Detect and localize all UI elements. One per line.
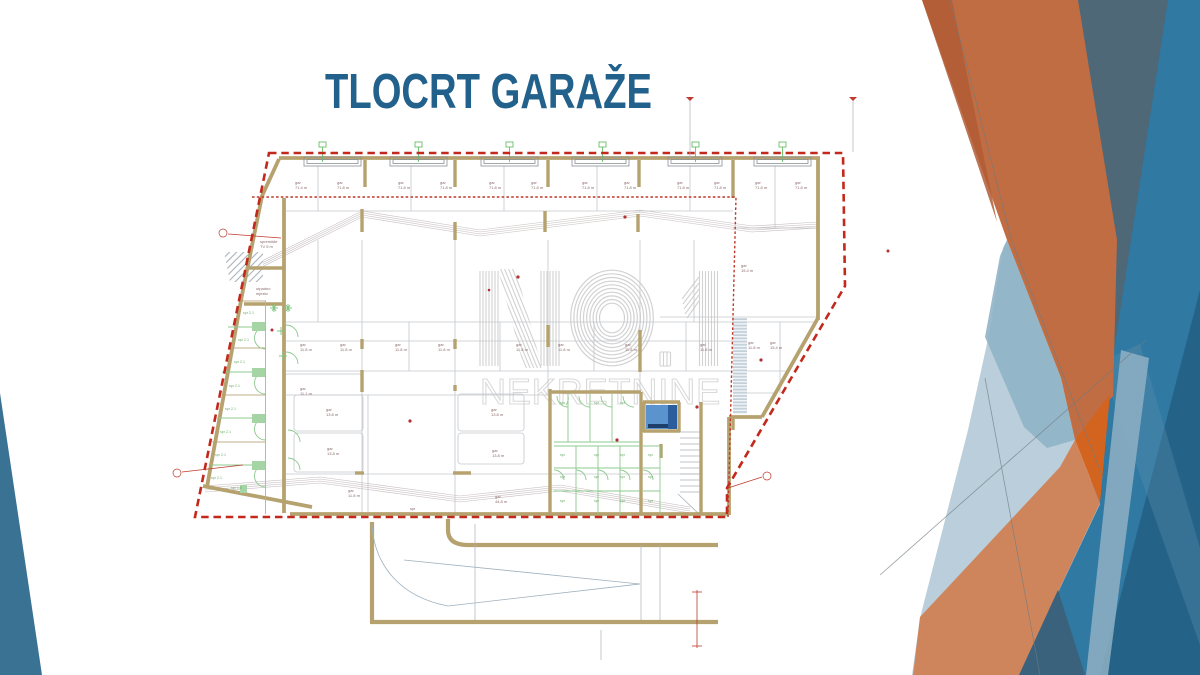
svg-text:11.8 m: 11.8 m: [625, 347, 638, 352]
svg-text:spr 2.1: spr 2.1: [220, 430, 231, 434]
svg-text:71.8 m: 71.8 m: [440, 185, 453, 190]
svg-text:spr: spr: [594, 401, 600, 405]
svg-text:spr 2.1: spr 2.1: [234, 360, 245, 364]
svg-text:13.8 m: 13.8 m: [492, 453, 505, 458]
svg-text:spr 1.8: spr 1.8: [231, 486, 242, 490]
svg-text:spr: spr: [648, 475, 654, 479]
svg-text:TV 5 m: TV 5 m: [260, 244, 274, 249]
svg-text:11.8 m: 11.8 m: [748, 345, 761, 350]
svg-text:spr: spr: [594, 499, 600, 503]
svg-text:11.8 m: 11.8 m: [700, 347, 713, 352]
svg-text:13.8 m: 13.8 m: [327, 451, 340, 456]
svg-text:spr: spr: [620, 453, 626, 457]
svg-text:71.8 m: 71.8 m: [755, 185, 768, 190]
svg-text:spr 2.1: spr 2.1: [238, 338, 249, 342]
svg-text:71.8 m: 71.8 m: [714, 185, 727, 190]
svg-text:spr: spr: [620, 475, 626, 479]
svg-text:71.8 m: 71.8 m: [531, 185, 544, 190]
svg-text:spr: spr: [594, 475, 600, 479]
svg-text:11.8 m: 11.8 m: [340, 347, 353, 352]
svg-text:11.8 m: 11.8 m: [438, 347, 451, 352]
svg-text:71.8 m: 71.8 m: [398, 185, 411, 190]
svg-text:15.4 m: 15.4 m: [770, 345, 783, 350]
svg-text:spr: spr: [560, 499, 566, 503]
svg-text:11.8 m: 11.8 m: [516, 347, 529, 352]
svg-text:spr: spr: [594, 453, 600, 457]
svg-text:71.8 m: 71.8 m: [795, 185, 808, 190]
svg-text:11.8 m: 11.8 m: [348, 493, 361, 498]
svg-text:11.8 m: 11.8 m: [558, 347, 571, 352]
svg-text:13.8 m: 13.8 m: [326, 412, 339, 417]
svg-text:spr: spr: [620, 499, 626, 503]
svg-text:spr: spr: [620, 401, 626, 405]
svg-text:spr 2.1: spr 2.1: [215, 453, 226, 457]
svg-text:spr: spr: [648, 453, 654, 457]
svg-text:71.8 m: 71.8 m: [489, 185, 502, 190]
svg-text:71.8 m: 71.8 m: [582, 185, 595, 190]
svg-text:spr: spr: [410, 506, 416, 511]
svg-text:11.1 m: 11.1 m: [300, 391, 313, 396]
svg-text:71.8 m: 71.8 m: [624, 185, 637, 190]
svg-text:11.8 m: 11.8 m: [395, 347, 408, 352]
svg-text:spr 2.1: spr 2.1: [225, 407, 236, 411]
svg-text:11.8 m: 11.8 m: [300, 347, 313, 352]
svg-text:spr 2.1: spr 2.1: [243, 311, 254, 315]
svg-text:spr: spr: [560, 475, 566, 479]
svg-text:spr: spr: [648, 499, 654, 503]
svg-text:15.4 m: 15.4 m: [741, 268, 754, 273]
svg-text:71.8 m: 71.8 m: [337, 185, 350, 190]
svg-text:13.8 m: 13.8 m: [491, 412, 504, 417]
svg-text:spr 2.1: spr 2.1: [211, 476, 222, 480]
svg-text:spr 2.1: spr 2.1: [229, 384, 240, 388]
svg-text:71.8 m: 71.8 m: [677, 185, 690, 190]
svg-text:mjesto: mjesto: [256, 291, 269, 296]
svg-text:71.4 m: 71.4 m: [295, 185, 308, 190]
svg-text:spr: spr: [560, 453, 566, 457]
svg-text:44.8 m: 44.8 m: [495, 499, 508, 504]
svg-text:spr: spr: [560, 401, 566, 405]
